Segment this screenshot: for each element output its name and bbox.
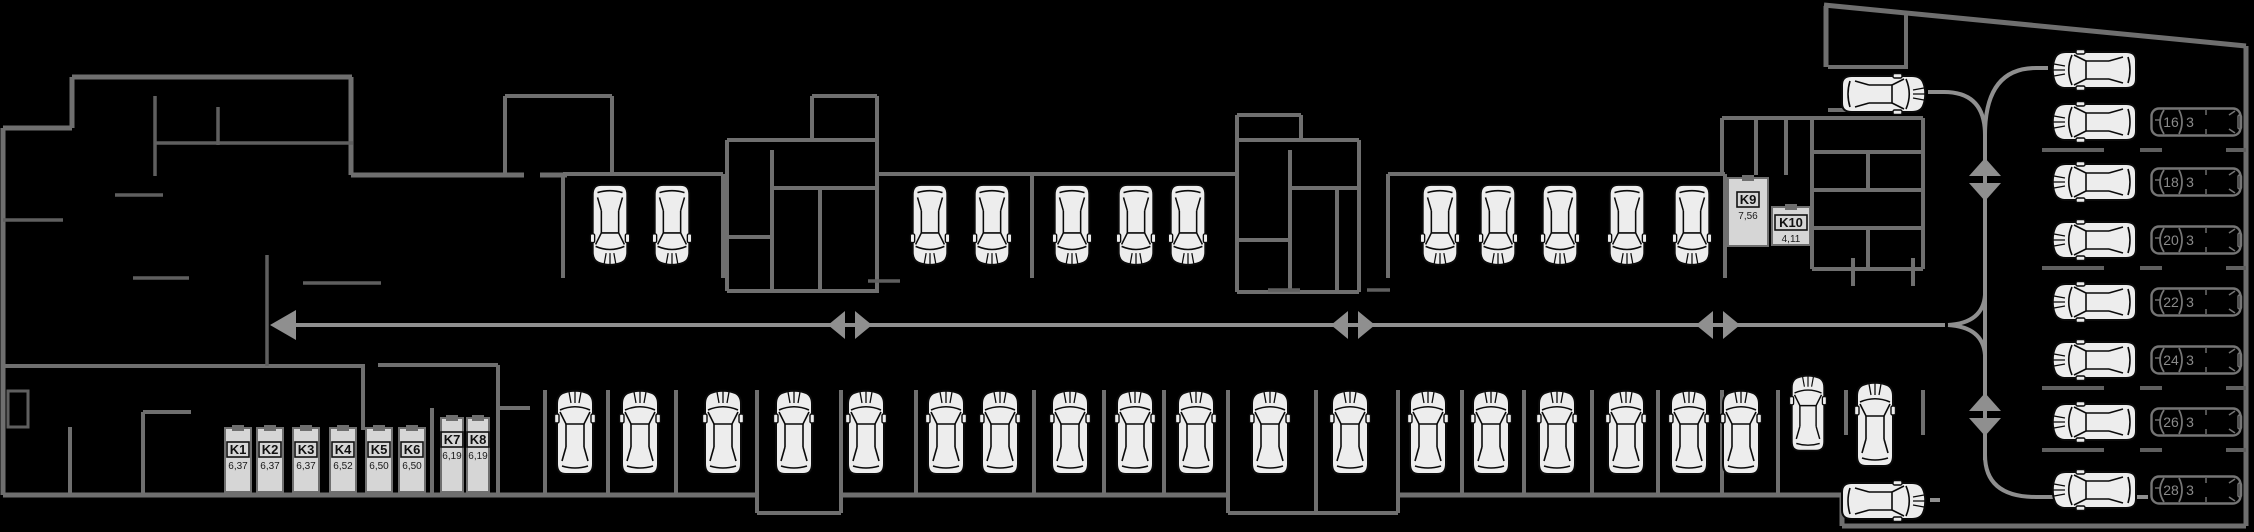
- double-arrow-left-icon: [1331, 311, 1348, 339]
- car-top-view: [1842, 74, 1925, 115]
- car-icon: [972, 185, 1011, 265]
- parking-spot-suffix: 3: [2186, 414, 2194, 430]
- car-top-view: [1537, 391, 1578, 474]
- car-icon: [1790, 376, 1827, 451]
- car-top-view: [1330, 391, 1371, 474]
- double-arrow-left-icon: [1696, 311, 1713, 339]
- parking-spot-number: 28: [2163, 482, 2179, 498]
- car-top-view: [1176, 391, 1217, 474]
- car-icon: [2053, 470, 2136, 511]
- arrow-down-icon: [1969, 183, 2001, 201]
- storage-unit-area: 6,19: [442, 451, 462, 462]
- car-icon: [774, 391, 815, 474]
- car-top-view: [590, 185, 629, 265]
- car-icon: [703, 391, 744, 474]
- car-icon: [1606, 391, 1647, 474]
- floor-plan-canvas: K16,37K26,37K36,37K46,52K56,50K66,50K76,…: [0, 0, 2254, 532]
- drive-aisle: [1985, 68, 2048, 135]
- car-icon: [910, 185, 949, 265]
- car-icon: [1669, 391, 1710, 474]
- parking-spot-suffix: 3: [2186, 174, 2194, 190]
- car-icon: [590, 185, 629, 265]
- car-top-view: [1672, 185, 1711, 265]
- arrow-up-icon: [1969, 158, 2001, 176]
- storage-unit-door: [446, 415, 458, 421]
- double-arrow-right-icon: [1723, 311, 1740, 339]
- storage-unit: K26,37: [257, 425, 283, 492]
- parking-spot-suffix: 3: [2186, 294, 2194, 310]
- car-icon: [1607, 185, 1646, 265]
- parking-spot-car: 183: [2152, 169, 2242, 196]
- car-top-view: [1052, 185, 1091, 265]
- storage-unit-outline: [293, 428, 319, 492]
- car-icon: [2053, 282, 2136, 323]
- double-arrow-right-icon: [855, 311, 872, 339]
- storage-unit-area: 6,37: [228, 461, 248, 472]
- wall-closet: [8, 391, 28, 427]
- storage-unit-label: K3: [298, 442, 315, 457]
- arrow-left-icon: [270, 310, 296, 340]
- storage-unit-door: [472, 415, 484, 421]
- car-top-view: [1471, 391, 1512, 474]
- storage-unit-label: K9: [1740, 192, 1757, 207]
- car-top-view: [2053, 340, 2136, 381]
- parking-spot-number: 18: [2163, 174, 2179, 190]
- parking-spot-car: 263: [2152, 409, 2242, 436]
- car-icon: [1855, 383, 1896, 466]
- storage-unit: K46,52: [330, 425, 356, 492]
- car-top-view: [2053, 50, 2136, 91]
- storage-unit-area: 6,52: [333, 461, 353, 472]
- car-top-view: [1669, 391, 1710, 474]
- parking-spot-number: 16: [2163, 114, 2179, 130]
- car-icon: [1672, 185, 1711, 265]
- car-icon: [1116, 185, 1155, 265]
- car-icon: [2053, 102, 2136, 143]
- storage-unit-door: [337, 425, 349, 431]
- storage-unit: K66,50: [399, 425, 425, 492]
- car-icon: [2053, 220, 2136, 261]
- car-top-view: [1250, 391, 1291, 474]
- car-top-view: [2053, 162, 2136, 203]
- car-top-view: [1790, 376, 1827, 451]
- storage-unit: K97,56: [1728, 175, 1768, 246]
- double-arrow-left-icon: [828, 311, 845, 339]
- car-icon: [1052, 185, 1091, 265]
- parking-spot-suffix: 3: [2186, 114, 2194, 130]
- drive-aisle: [1948, 325, 1985, 355]
- car-top-view: [910, 185, 949, 265]
- car-icon: [1168, 185, 1207, 265]
- storage-unit-door: [264, 425, 276, 431]
- parking-spot-suffix: 3: [2186, 352, 2194, 368]
- storage-unit-area: 6,19: [468, 451, 488, 462]
- parking-spot-number: 22: [2163, 294, 2179, 310]
- arrow-up-icon: [1969, 393, 2001, 411]
- storage-unit: K16,37: [225, 425, 251, 492]
- car-top-view: [2053, 402, 2136, 443]
- car-icon: [1842, 74, 1925, 115]
- car-icon: [1478, 185, 1517, 265]
- car-top-view: [1115, 391, 1156, 474]
- storage-unit-label: K10: [1779, 215, 1803, 230]
- car-top-view: [620, 391, 661, 474]
- storage-unit-outline: [366, 428, 392, 492]
- storage-unit-door: [300, 425, 312, 431]
- double-arrow-right-icon: [1358, 311, 1375, 339]
- car-icon: [1115, 391, 1156, 474]
- parking-spot-number: 26: [2163, 414, 2179, 430]
- car-icon: [1540, 185, 1579, 265]
- car-icon: [846, 391, 887, 474]
- parking-spot-number: 24: [2163, 352, 2179, 368]
- car-icon: [1408, 391, 1449, 474]
- parking-spot-car: 203: [2152, 227, 2242, 254]
- car-top-view: [652, 185, 691, 265]
- storage-unit: K86,19: [467, 415, 489, 492]
- car-top-view: [1050, 391, 1091, 474]
- car-top-view: [926, 391, 967, 474]
- storage-unit: K36,37: [293, 425, 319, 492]
- storage-unit-door: [406, 425, 418, 431]
- car-icon: [652, 185, 691, 265]
- car-icon: [1471, 391, 1512, 474]
- drive-aisle: [1948, 295, 1985, 325]
- parking-spot-car: 243: [2152, 347, 2242, 374]
- storage-unit: K56,50: [366, 425, 392, 492]
- car-top-view: [2053, 470, 2136, 511]
- parking-floor-plan: K16,37K26,37K36,37K46,52K56,50K66,50K76,…: [0, 0, 2254, 532]
- car-top-view: [1607, 185, 1646, 265]
- storage-unit: K76,19: [441, 415, 463, 492]
- car-top-view: [1842, 481, 1925, 522]
- car-top-view: [2053, 282, 2136, 323]
- parking-spot-suffix: 3: [2186, 232, 2194, 248]
- storage-unit-label: K1: [230, 442, 247, 457]
- car-top-view: [703, 391, 744, 474]
- parking-spot-car: 163: [2152, 109, 2242, 136]
- parking-spot-number: 20: [2163, 232, 2179, 248]
- arrow-down-icon: [1969, 418, 2001, 436]
- storage-unit: K104,11: [1772, 204, 1810, 245]
- storage-unit-door: [1742, 175, 1754, 181]
- car-icon: [1842, 481, 1925, 522]
- storage-unit-label: K7: [444, 432, 461, 447]
- car-top-view: [1855, 383, 1896, 466]
- car-icon: [980, 391, 1021, 474]
- car-top-view: [1168, 185, 1207, 265]
- parking-spot-car: 223: [2152, 289, 2242, 316]
- parking-spot-car: 283: [2152, 477, 2242, 504]
- car-icon: [1250, 391, 1291, 474]
- car-top-view: [1478, 185, 1517, 265]
- storage-unit-area: 6,50: [402, 461, 422, 472]
- car-top-view: [1606, 391, 1647, 474]
- car-top-view: [774, 391, 815, 474]
- drive-aisle: [1928, 92, 1985, 135]
- car-icon: [926, 391, 967, 474]
- car-top-view: [1420, 185, 1459, 265]
- car-icon: [1330, 391, 1371, 474]
- car-icon: [2053, 402, 2136, 443]
- storage-unit-area: 7,56: [1738, 211, 1758, 222]
- car-top-view: [1408, 391, 1449, 474]
- car-icon: [2053, 50, 2136, 91]
- car-top-view: [980, 391, 1021, 474]
- storage-unit-door: [1785, 204, 1797, 210]
- storage-unit-door: [373, 425, 385, 431]
- car-top-view: [1540, 185, 1579, 265]
- car-top-view: [555, 391, 596, 474]
- car-top-view: [1721, 391, 1762, 474]
- car-top-view: [972, 185, 1011, 265]
- storage-unit-label: K4: [335, 442, 352, 457]
- storage-unit-label: K2: [262, 442, 279, 457]
- car-icon: [1176, 391, 1217, 474]
- car-top-view: [846, 391, 887, 474]
- car-icon: [1420, 185, 1459, 265]
- storage-unit-area: 6,37: [260, 461, 280, 472]
- car-icon: [1537, 391, 1578, 474]
- car-icon: [2053, 340, 2136, 381]
- car-top-view: [2053, 102, 2136, 143]
- storage-unit-outline: [399, 428, 425, 492]
- storage-unit-label: K6: [404, 442, 421, 457]
- storage-unit-label: K8: [470, 432, 487, 447]
- storage-unit-door: [232, 425, 244, 431]
- car-icon: [2053, 162, 2136, 203]
- storage-unit-label: K5: [371, 442, 388, 457]
- parking-spot-suffix: 3: [2186, 482, 2194, 498]
- car-icon: [1050, 391, 1091, 474]
- car-icon: [555, 391, 596, 474]
- car-top-view: [2053, 220, 2136, 261]
- car-icon: [620, 391, 661, 474]
- storage-unit-area: 6,50: [369, 461, 389, 472]
- storage-unit-area: 6,37: [296, 461, 316, 472]
- storage-unit-outline: [257, 428, 283, 492]
- storage-unit-area: 4,11: [1782, 234, 1801, 245]
- car-icon: [1721, 391, 1762, 474]
- storage-unit-outline: [225, 428, 251, 492]
- wall: [1824, 5, 2246, 46]
- storage-unit-outline: [330, 428, 356, 492]
- car-top-view: [1116, 185, 1155, 265]
